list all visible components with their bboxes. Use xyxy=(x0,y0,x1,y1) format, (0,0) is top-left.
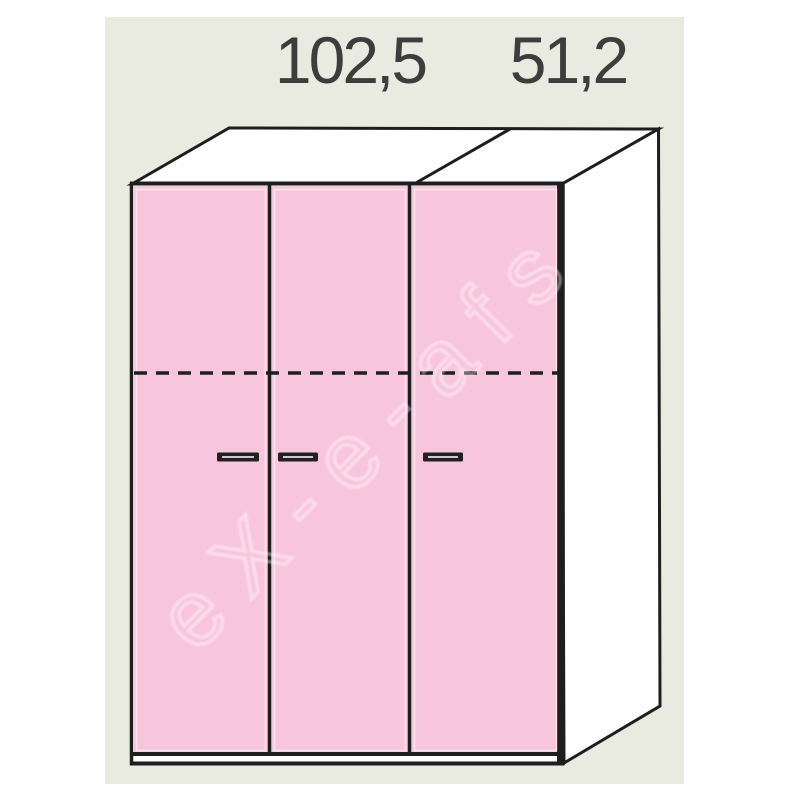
svg-text:102,5: 102,5 xyxy=(275,23,425,97)
svg-text:51,2: 51,2 xyxy=(510,23,627,97)
